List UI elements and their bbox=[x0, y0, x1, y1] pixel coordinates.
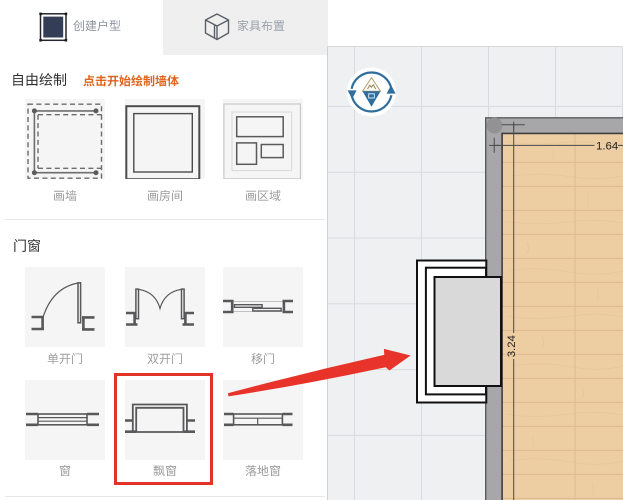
svg-text:1.64: 1.64 bbox=[596, 140, 618, 152]
svg-text:3.24: 3.24 bbox=[506, 335, 518, 357]
